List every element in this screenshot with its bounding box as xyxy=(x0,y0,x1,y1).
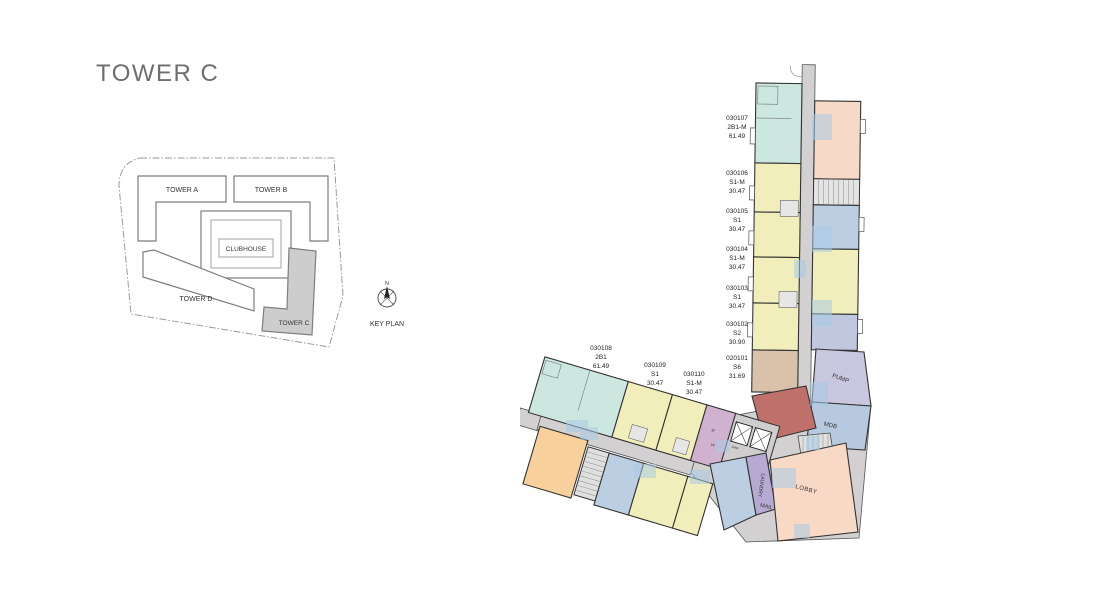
keyplan-tower-b-label: TOWER B xyxy=(255,187,288,194)
unit-030102-shape xyxy=(752,350,799,393)
unit-type: 2B1-M xyxy=(726,123,748,132)
unit-id: 030103 xyxy=(726,284,748,293)
unit-id: 030106 xyxy=(726,169,748,178)
unit-area: 30.47 xyxy=(726,187,748,196)
keyplan-tower-a-label: TOWER A xyxy=(166,187,198,194)
unit-030105-shape xyxy=(754,212,801,258)
unit-area: 61.49 xyxy=(726,132,748,141)
unit-id: 030110 xyxy=(683,370,704,379)
unit-id: 030104 xyxy=(726,245,748,254)
unit-030103-shape xyxy=(752,303,799,351)
unit-area: 30.47 xyxy=(644,379,666,388)
unit-label-030104: 030104 S1-M 30.47 xyxy=(726,245,748,273)
keyplan-tower-d-label: TOWER D xyxy=(180,296,213,303)
unit-label-020101: 020101 S6 31.69 xyxy=(726,354,748,382)
unit-label-030107: 030107 2B1-M 61.49 xyxy=(726,114,748,142)
adjacent-unit-salmon xyxy=(814,101,861,180)
unit-id: 030102 xyxy=(726,320,748,329)
unit-area: 30.47 xyxy=(726,302,748,311)
north-label: N xyxy=(385,281,389,287)
unit-label-030109: 030109 S1 30.47 xyxy=(644,361,666,389)
unit-area: 30.47 xyxy=(726,225,748,234)
page-title: TOWER C xyxy=(96,60,219,88)
unit-id: 030107 xyxy=(726,114,748,123)
unit-area: 30.47 xyxy=(683,388,704,397)
north-arrow-icon: N xyxy=(378,281,396,307)
unit-label-030106: 030106 S1-M 30.47 xyxy=(726,169,748,197)
unit-030107-shape xyxy=(755,83,802,164)
unit-type: S1-M xyxy=(726,254,748,263)
stairwell-east xyxy=(813,179,859,206)
unit-id: 020101 xyxy=(726,354,748,363)
unit-id: 030105 xyxy=(726,207,748,216)
unit-type: S2 xyxy=(726,329,748,338)
keyplan-tower-c-label: TOWER C xyxy=(279,320,310,327)
unit-type: S1 xyxy=(644,370,666,379)
key-plan: TOWER A TOWER B CLUBHOUSE TOWER D TOWER … xyxy=(108,148,420,378)
floor-plan-sheet: TOWER C TOWER A TOWER B CLUBHOUSE TOWER … xyxy=(0,0,1099,590)
unit-label-030110: 030110 S1-M 30.47 xyxy=(683,370,704,398)
unit-area: 30.90 xyxy=(726,338,748,347)
unit-type: S1-M xyxy=(726,178,748,187)
unit-type: 2B1 xyxy=(590,353,612,362)
unit-label-030108: 030108 2B1 61.49 xyxy=(590,344,612,372)
keyplan-clubhouse-label: CLUBHOUSE xyxy=(226,246,267,253)
unit-id: 030109 xyxy=(644,361,666,370)
unit-label-030103: 030103 S1 30.47 xyxy=(726,284,748,312)
unit-label-030105: 030105 S1 30.47 xyxy=(726,207,748,235)
main-floor-plan: EE GAR M W PUMP MDB LOB xyxy=(520,55,890,590)
unit-area: 31.69 xyxy=(726,372,748,381)
unit-type: S6 xyxy=(726,363,748,372)
unit-type: S1 xyxy=(726,216,748,225)
unit-area: 61.49 xyxy=(590,362,612,371)
key-plan-caption: KEY PLAN xyxy=(370,321,404,328)
unit-type: S1-M xyxy=(683,379,704,388)
unit-area: 30.47 xyxy=(726,263,748,272)
unit-label-030102: 030102 S2 30.90 xyxy=(726,320,748,348)
unit-type: S1 xyxy=(726,293,748,302)
unit-id: 030108 xyxy=(590,344,612,353)
